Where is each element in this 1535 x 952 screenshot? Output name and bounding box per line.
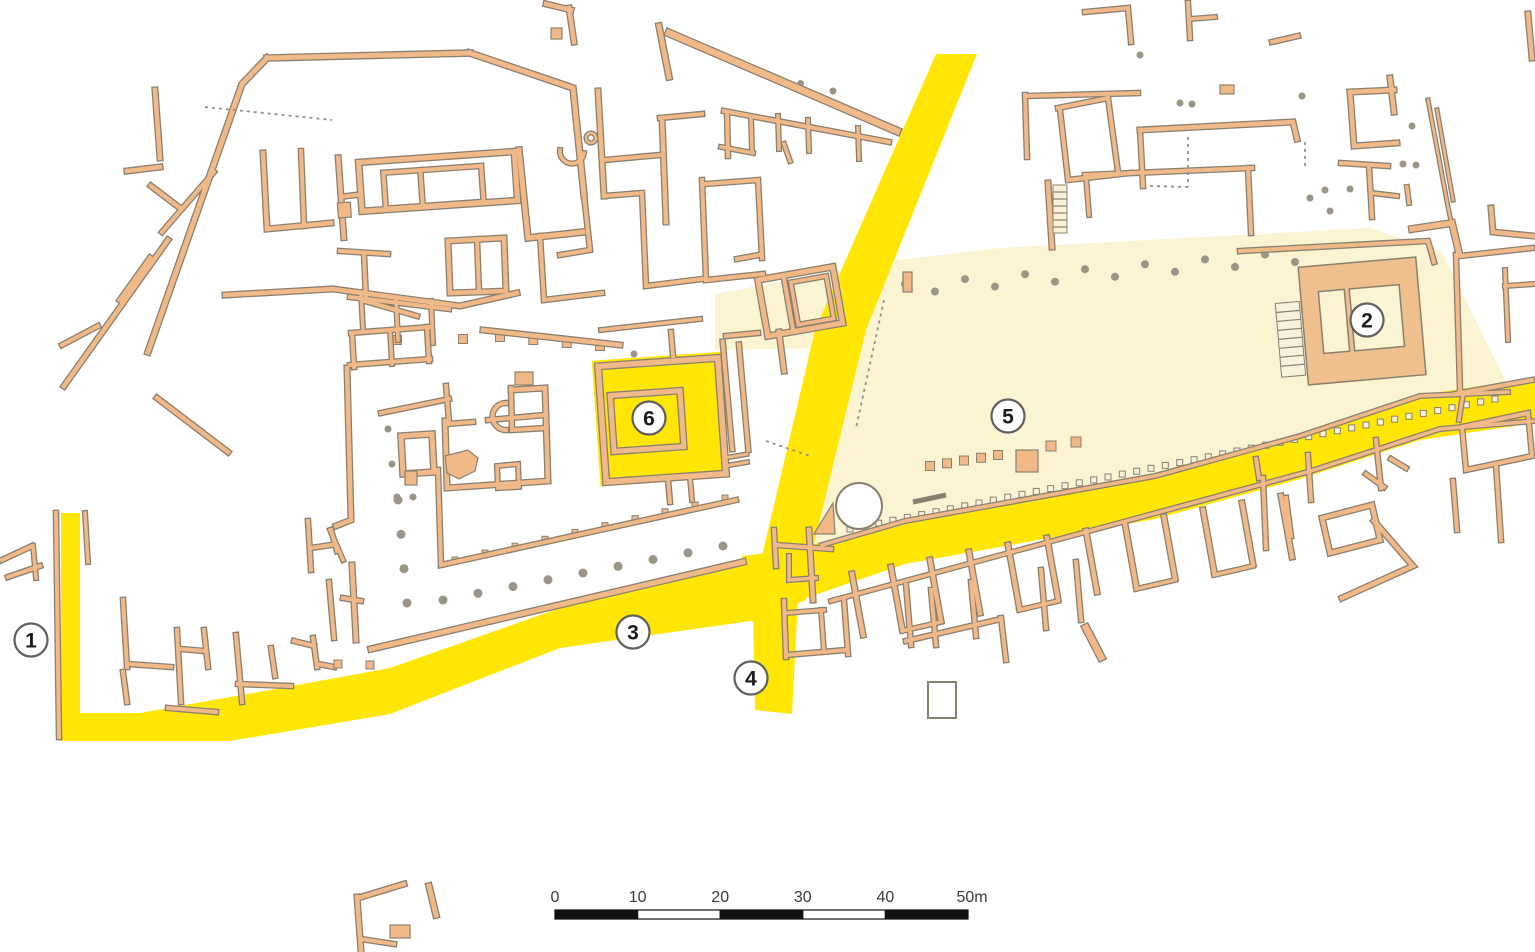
- marker-3: 3: [617, 616, 650, 649]
- scale-tick-10: 10: [629, 889, 647, 906]
- scale-tick-20: 20: [711, 889, 729, 906]
- well-square: [928, 682, 956, 718]
- marker-2-label: 2: [1361, 310, 1373, 333]
- scale-tick-50m: 50m: [956, 889, 987, 906]
- marker-1: 1: [15, 624, 48, 657]
- marker-6: 6: [633, 402, 666, 435]
- marker-4: 4: [735, 662, 768, 695]
- scale-bar: 0 10 20 30 40 50m: [551, 889, 988, 919]
- scale-tick-0: 0: [551, 889, 560, 906]
- marker-6-label: 6: [643, 408, 655, 431]
- marker-2: 2: [1351, 304, 1384, 337]
- scale-tick-40: 40: [877, 889, 895, 906]
- marker-5: 5: [992, 400, 1025, 433]
- scale-tick-30: 30: [794, 889, 812, 906]
- site-plan: 1 2 3 4 5 6 0 10 20 30 40: [0, 0, 1535, 952]
- site-plan-page: 1 2 3 4 5 6 0 10 20 30 40: [0, 0, 1535, 952]
- marker-3-label: 3: [627, 622, 639, 645]
- marker-1-label: 1: [25, 630, 37, 653]
- marker-4-label: 4: [745, 668, 757, 691]
- fountain-circle: [836, 483, 882, 529]
- marker-5-label: 5: [1002, 406, 1014, 429]
- stairs-top-right: [1053, 185, 1067, 233]
